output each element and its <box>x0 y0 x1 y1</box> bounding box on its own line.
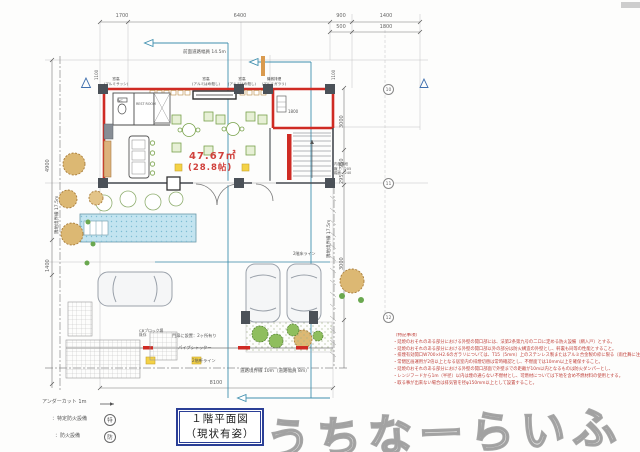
dim-side-2: 1100 <box>332 70 336 80</box>
legend-item-2: ：防火設備 <box>55 434 80 440</box>
legend-item-1: ：特定防火設備 <box>52 417 87 423</box>
round-table <box>183 124 196 137</box>
room-dim: 1800 <box>288 110 298 114</box>
floor-area-m2: 47.67㎡ <box>189 147 237 162</box>
gate-note-label: 門扉に設置：2ヶ所有り <box>172 334 217 339</box>
wc-label: WC <box>117 100 123 104</box>
legend-symbol-2: 防 <box>104 431 116 443</box>
counter-chairs <box>150 141 154 175</box>
dim-right-1: 3000 <box>340 115 346 128</box>
dim-right-4: 3000 <box>340 257 346 270</box>
notes-header: （特記事項） <box>393 333 640 340</box>
note-line: ・延焼のおそれのある部分における外壁の開口部面で外壁までの距離が10m以内となる… <box>393 367 640 374</box>
car-2 <box>246 264 280 322</box>
cars <box>98 264 321 322</box>
drawing-title-box: １階平面図 （現状有姿） <box>176 408 264 446</box>
note-line: ・常閉区画運用が2倍以上となる居室内の排煙切替は常時確認とし、不燃面では10mm… <box>393 360 640 367</box>
floor2-line-label: 2階床ライン <box>293 252 316 256</box>
stairs <box>293 133 331 178</box>
stair-note: 内部階段 蹴上：205 踏面：240 <box>334 162 351 176</box>
gate-post <box>241 311 250 324</box>
pipe-shutter-label: パイプシャッター <box>178 346 212 351</box>
scan-artifact <box>621 2 640 8</box>
boundary-left-label: 隣地境界線 17.5m <box>56 196 61 234</box>
floor-area-jo: (28.8帖) <box>188 161 232 173</box>
road-bottom-label: 道路境界線 10m（道路幅員 8m） <box>240 370 310 375</box>
drawing-title-line1: １階平面図 <box>191 412 249 427</box>
arrow-left-3-icon <box>238 395 247 402</box>
arrow-left-1-icon <box>145 40 154 47</box>
gate-post <box>309 311 318 324</box>
note-line: ・取る事が出来ない場合は排気管を径φ150mm以上として設置すること。 <box>393 381 640 388</box>
arrow-left-2-icon <box>250 59 259 66</box>
window-label-4: 機械排煙 (アルミガラリ) <box>254 77 294 86</box>
drawing-title-line2: （現状有姿） <box>186 427 255 442</box>
cb-wall-label: CBブロック塀 既存 <box>139 329 163 337</box>
car-1 <box>98 272 172 306</box>
grid-bubble-3: 12 <box>383 312 394 323</box>
approach-paving <box>66 302 177 378</box>
round-table <box>227 123 240 136</box>
utility-pole <box>261 56 265 76</box>
floor-plan-page: 1700 6400 900 1400 500 1800 1100 1100 49… <box>0 0 640 452</box>
planters <box>96 191 183 211</box>
stair-fire-wall <box>287 134 292 180</box>
dim-top-sub-2: 1800 <box>380 25 393 31</box>
legend-symbol-1: 特 <box>104 414 116 426</box>
undercut-arrow-icon <box>100 402 114 406</box>
note-line: ・レンジフードから1m（半径）以内は煙の通らない不燃材とし、可燃材については下地… <box>393 374 640 381</box>
dim-left-2: 1400 <box>46 259 52 272</box>
notes-block: （特記事項） ・延焼のおそれのある部分における外壁の開口部には、法第2条第九号の… <box>393 333 640 387</box>
dim-top-1: 1700 <box>116 14 129 20</box>
dim-right-3: 295 <box>340 174 346 184</box>
pool <box>80 214 196 242</box>
boundary-right-label: 隣地境界線 17.5m <box>328 220 333 258</box>
window-label-1: 窓高 (アルミサッシ) <box>96 77 136 86</box>
column-white <box>167 177 180 190</box>
restroom-block <box>113 93 170 125</box>
grid-bubble-2: 11 <box>383 178 394 189</box>
meter-box <box>277 96 286 112</box>
note-line: ・延焼のおそれのある部分における外壁の開口部には、法第2条第九号の二ロに定める防… <box>393 340 640 347</box>
dim-top-sub-1: 500 <box>336 25 346 31</box>
dim-top-4: 1400 <box>380 14 393 20</box>
dim-bottom: 8100 <box>210 381 223 387</box>
dim-top-2: 6400 <box>234 14 247 20</box>
eave-line-label: 2階軒ライン <box>192 359 216 364</box>
grid-bubble-1: 10 <box>383 84 394 95</box>
rest-room-label: REST ROOM <box>136 103 156 107</box>
dim-top-3: 900 <box>336 14 346 20</box>
legend-undercut: アンダーカット 1m <box>42 400 86 406</box>
kitchen-counter <box>104 124 155 178</box>
front-road-label: 前面道路幅員 14.5m <box>183 51 226 56</box>
dim-left-1: 4900 <box>46 159 52 172</box>
